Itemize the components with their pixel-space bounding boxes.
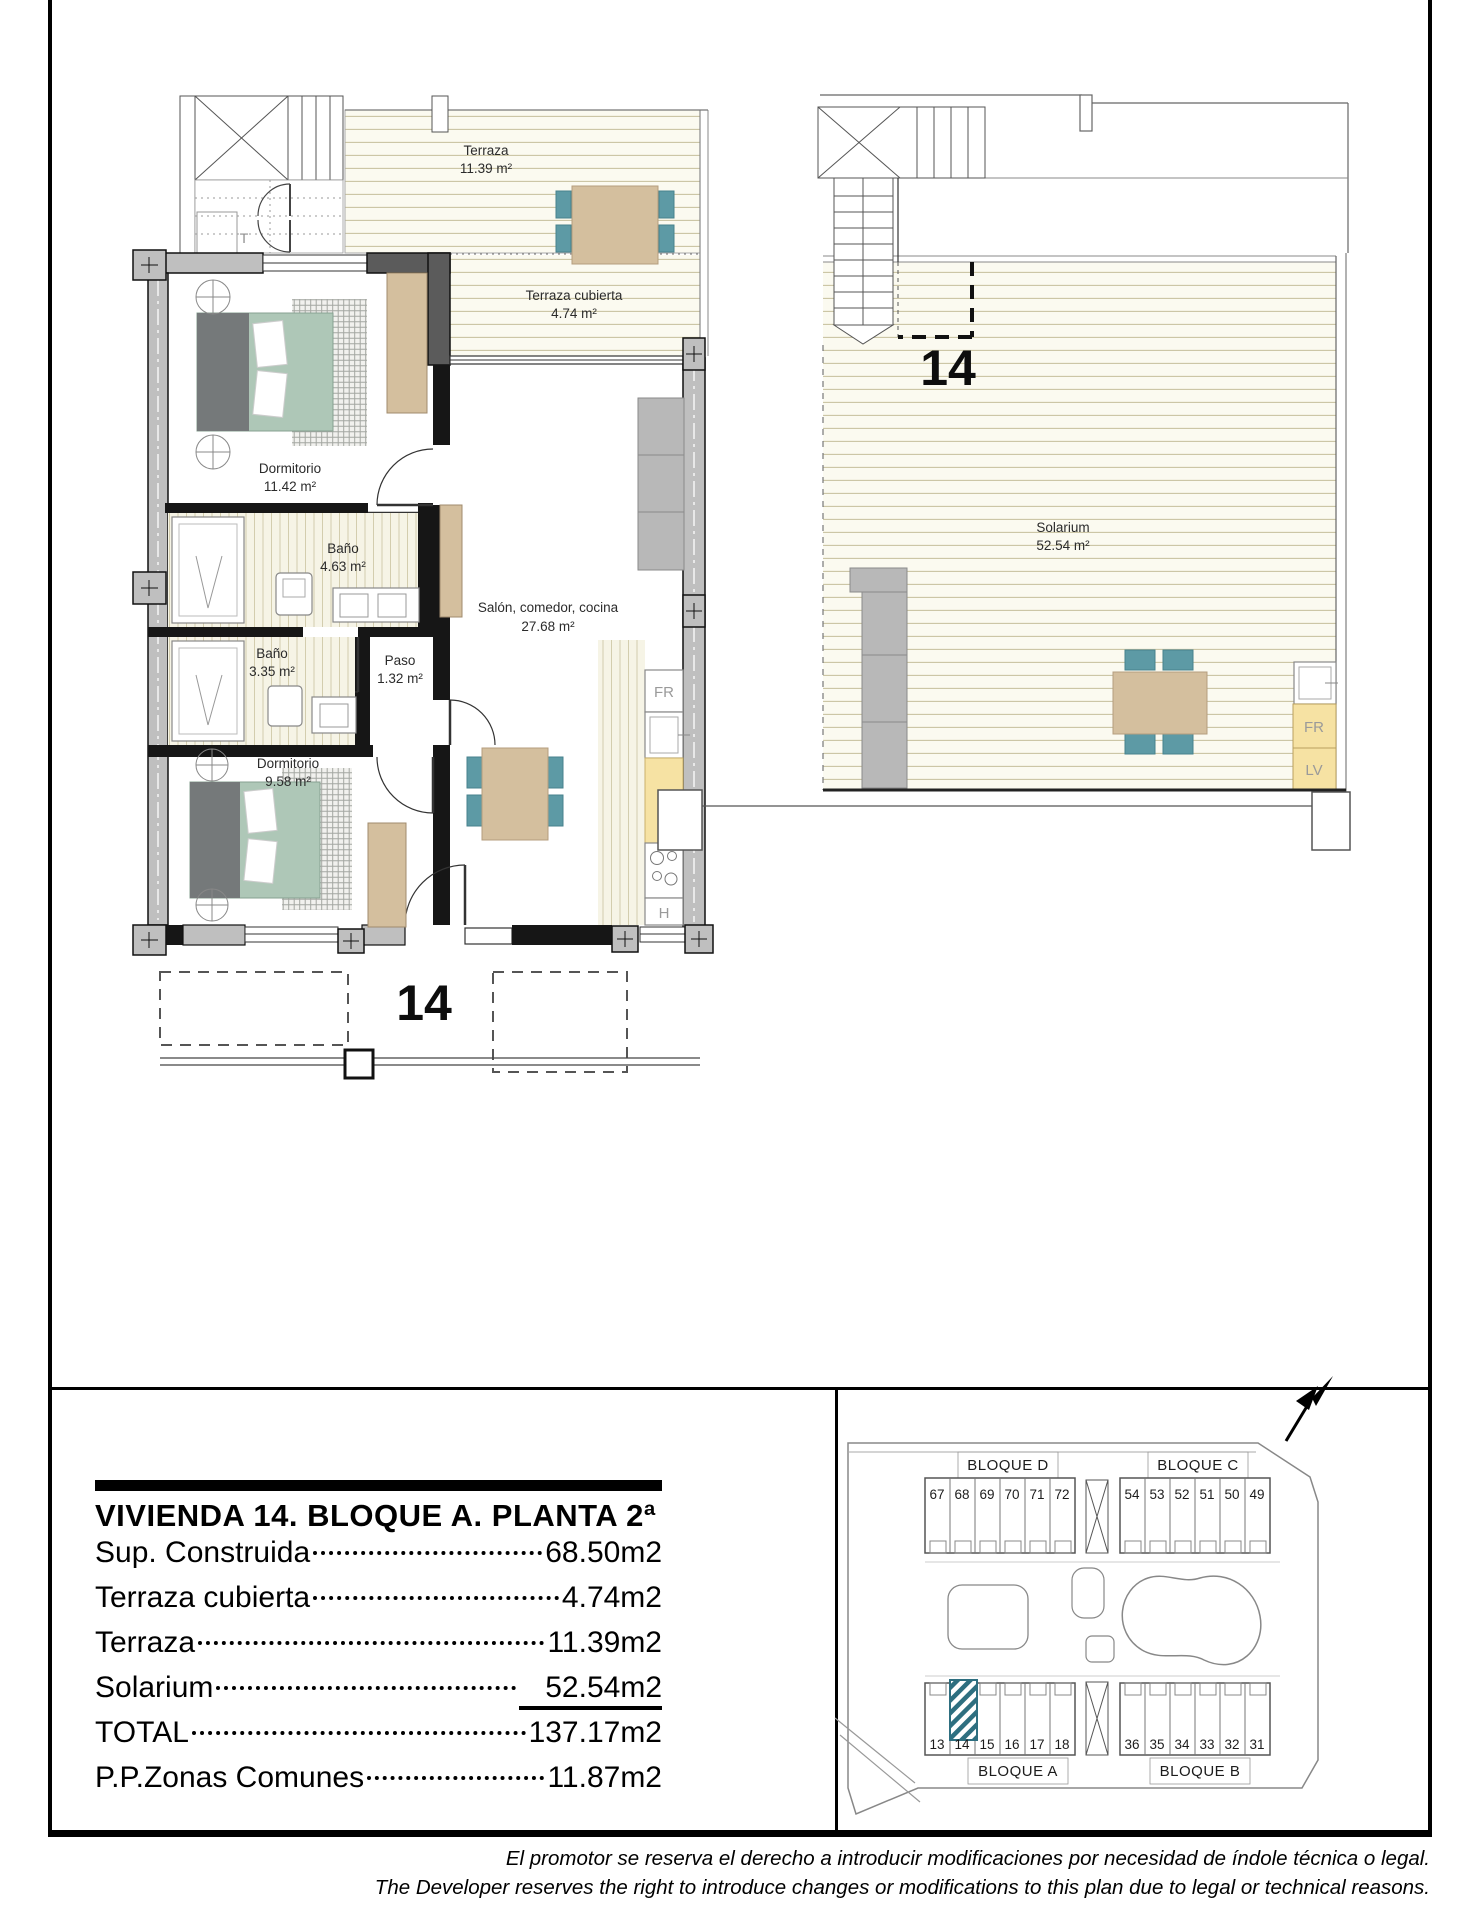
block-c: BLOQUE C 54 53 52 51 50 49 [1120,1452,1270,1553]
svg-text:3.35 m²: 3.35 m² [249,664,295,679]
svg-text:51: 51 [1199,1487,1214,1502]
living-kitchen: FR H [440,398,690,925]
room-label-salon: Salón, comedor, cocina [478,600,619,615]
svg-text:32: 32 [1224,1737,1239,1752]
svg-text:14: 14 [954,1737,970,1752]
room-label-terraza: Terraza [463,143,509,158]
right-solarium-plan: 14 Solarium 52.54 m² FR LV [658,95,1350,850]
svg-text:68: 68 [954,1487,969,1502]
svg-text:16: 16 [1004,1737,1019,1752]
svg-text:4.63 m²: 4.63 m² [320,559,366,574]
left-floor-plan: T [133,96,713,1078]
title-bar [95,1480,662,1491]
terrace-dining-table [556,186,674,264]
svg-text:52: 52 [1174,1487,1189,1502]
svg-text:11.42 m²: 11.42 m² [264,479,317,494]
summer-kitchen: FR LV [1293,662,1338,790]
room-label-dormitorio1: Dormitorio [259,461,321,476]
pool [1122,1576,1261,1665]
svg-text:70: 70 [1004,1487,1019,1502]
svg-text:54: 54 [1124,1487,1140,1502]
kitchen-sink [645,712,683,758]
room-label-terraza-cubierta: Terraza cubierta [526,288,623,303]
floor-plans: T [0,0,1484,1388]
block-d: BLOQUE D 67 68 69 70 71 72 [925,1452,1075,1553]
disclaimer-en: The Developer reserves the right to intr… [230,1873,1430,1902]
info-table: VIVIENDA 14. BLOQUE A. PLANTA 2ª Sup. Co… [95,1480,662,1806]
svg-text:4.74 m²: 4.74 m² [551,306,597,321]
highlighted-unit-14 [950,1680,977,1740]
disclaimer: El promotor se reserva el derecho a intr… [230,1844,1430,1902]
sofa [638,398,684,570]
svg-text:50: 50 [1224,1487,1239,1502]
svg-text:11.39 m²: 11.39 m² [460,161,513,176]
bedroom1-furniture [196,273,427,469]
table-row: Solarium52.54m2 [95,1671,662,1716]
svg-text:72: 72 [1054,1487,1069,1502]
table-row: Sup. Construida68.50m2 [95,1536,662,1581]
svg-text:34: 34 [1174,1737,1190,1752]
fridge-label: FR [1304,719,1324,736]
block-b: 36 35 34 33 32 31 BLOQUE B [1120,1683,1270,1784]
table-row: P.P.Zonas Comunes11.87m2 [95,1761,662,1806]
toilet [268,686,302,726]
unit-number: 14 [396,975,452,1031]
site-plan: BLOQUE D 67 68 69 70 71 72 BLOQUE C 5 [835,1390,1430,1830]
lawn [948,1585,1028,1649]
table-row: TOTAL137.17m2 [95,1716,662,1761]
wardrobe [387,273,427,413]
room-label-paso: Paso [385,653,416,668]
svg-text:31: 31 [1249,1737,1264,1752]
washer-label: LV [1305,762,1322,779]
svg-text:18: 18 [1054,1737,1069,1752]
svg-text:15: 15 [979,1737,994,1752]
block-a: 13 14 15 16 17 18 BLOQUE A [925,1680,1075,1784]
svg-text:35: 35 [1149,1737,1164,1752]
page-title: VIVIENDA 14. BLOQUE A. PLANTA 2ª [95,1498,662,1534]
svg-text:1.32 m²: 1.32 m² [377,671,423,686]
svg-text:71: 71 [1029,1487,1044,1502]
stair-storage: T [195,180,343,253]
parking-outline [160,972,627,1072]
frame-bottom [48,1830,1432,1837]
dining-table [467,748,563,840]
unit-number: 14 [920,340,976,396]
svg-text:52.54 m²: 52.54 m² [1036,538,1090,553]
room-label-bano1: Baño [327,541,359,556]
room-label-dormitorio2: Dormitorio [257,756,319,771]
svg-text:53: 53 [1149,1487,1164,1502]
svg-text:13: 13 [929,1737,944,1752]
svg-text:67: 67 [929,1487,944,1502]
hob-label: H [659,905,670,922]
block-label: BLOQUE D [967,1457,1049,1474]
svg-text:69: 69 [979,1487,994,1502]
block-label: BLOQUE A [978,1763,1058,1780]
table-row: Terraza cubierta4.74m2 [95,1581,662,1626]
svg-text:36: 36 [1124,1737,1139,1752]
fridge-label: FR [654,684,674,701]
svg-text:17: 17 [1029,1737,1044,1752]
floor-plan-sheet: T [0,0,1484,1920]
svg-text:33: 33 [1199,1737,1214,1752]
cabinet [440,505,462,617]
block-label: BLOQUE C [1157,1457,1239,1474]
svg-text:27.68 m²: 27.68 m² [521,619,575,634]
wardrobe [368,823,406,927]
hob [645,843,683,898]
svg-text:9.58 m²: 9.58 m² [265,774,311,789]
svg-text:49: 49 [1249,1487,1264,1502]
room-label-solarium: Solarium [1036,520,1089,535]
stair-storage-label: T [240,230,249,246]
room-label-bano2: Baño [256,646,288,661]
table-row: Terraza11.39m2 [95,1626,662,1671]
block-label: BLOQUE B [1160,1763,1241,1780]
disclaimer-es: El promotor se reserva el derecho a intr… [230,1844,1430,1873]
